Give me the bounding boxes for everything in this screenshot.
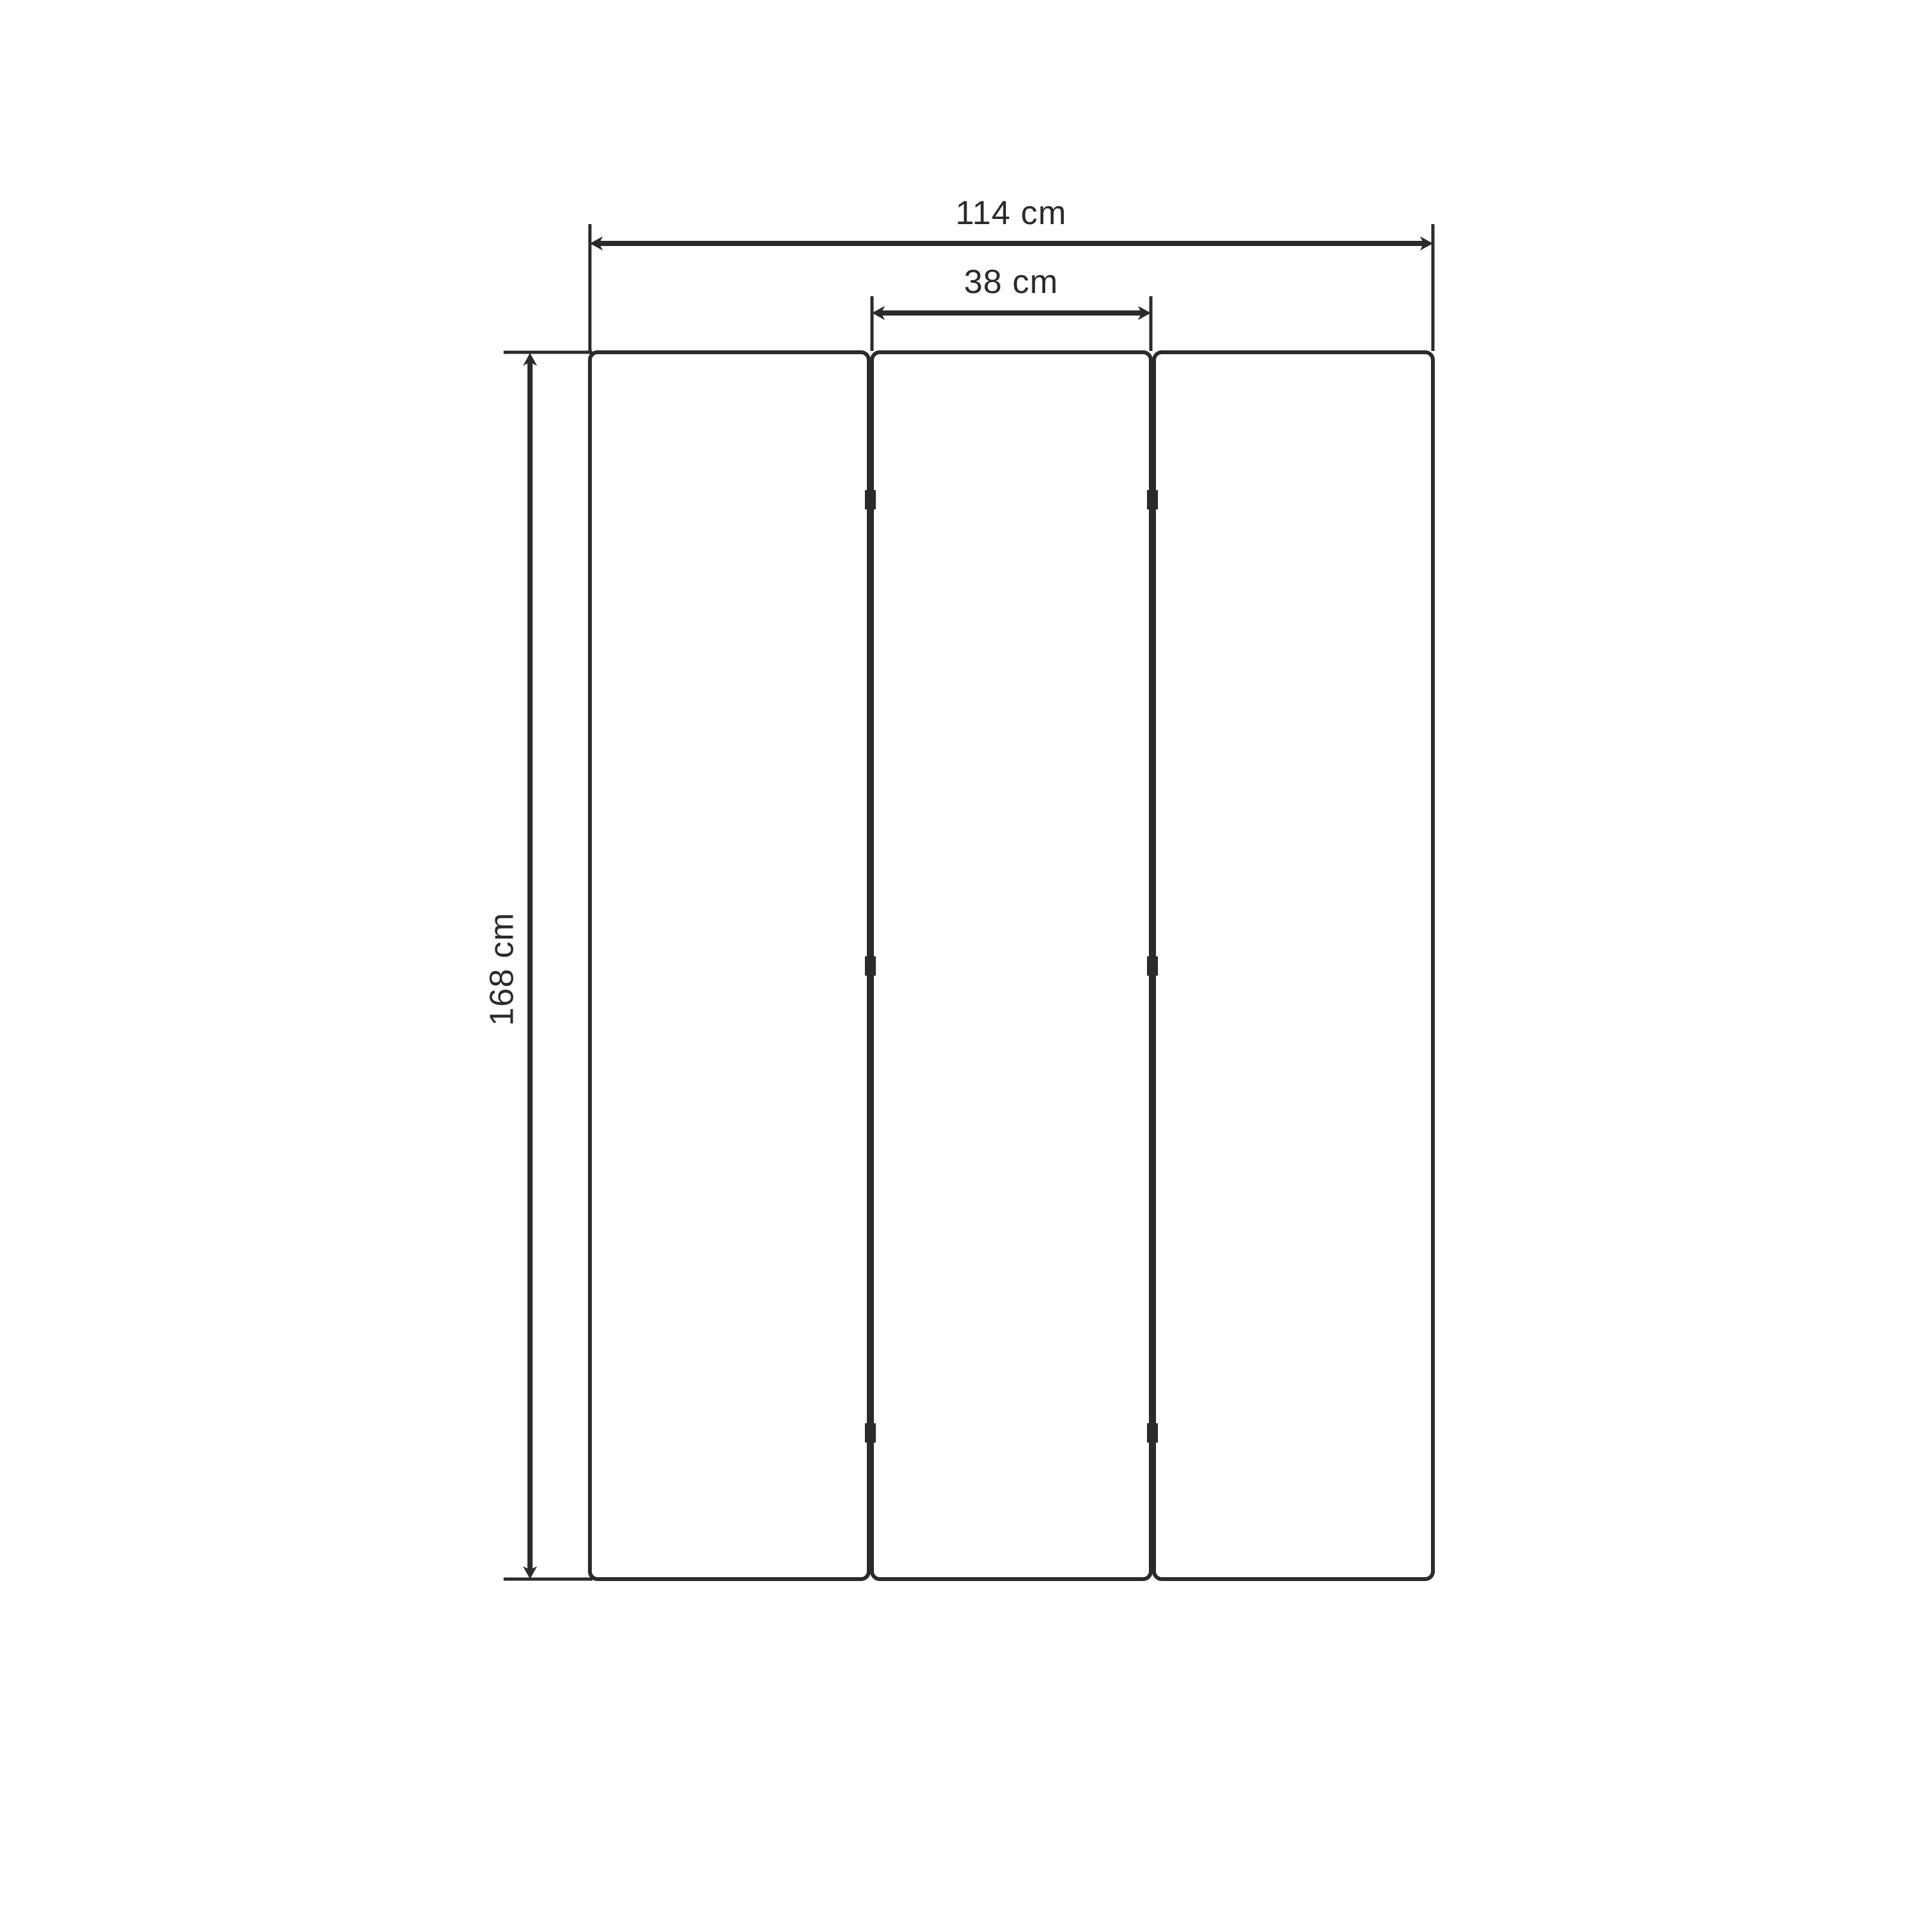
dimension-panel-width: 38 cm xyxy=(872,263,1151,351)
panel-right xyxy=(1154,352,1433,1579)
hinge-mark xyxy=(1147,1423,1158,1443)
total-width-label: 114 cm xyxy=(956,194,1067,232)
height-label: 168 cm xyxy=(484,913,521,1027)
panel-width-label: 38 cm xyxy=(964,263,1059,301)
hinge-mark xyxy=(1147,956,1158,976)
dimension-height: 168 cm xyxy=(484,352,592,1579)
hinge-mark xyxy=(1147,490,1158,509)
hinge-mark xyxy=(865,956,876,976)
dimension-diagram: 114 cm 38 cm 168 cm xyxy=(0,0,1932,1932)
folding-screen-drawing: 114 cm 38 cm 168 cm xyxy=(0,0,1932,1932)
panel-left xyxy=(590,352,869,1579)
panel-center xyxy=(872,352,1151,1579)
hinge-mark xyxy=(865,490,876,509)
hinge-mark xyxy=(865,1423,876,1443)
panels xyxy=(590,352,1433,1579)
